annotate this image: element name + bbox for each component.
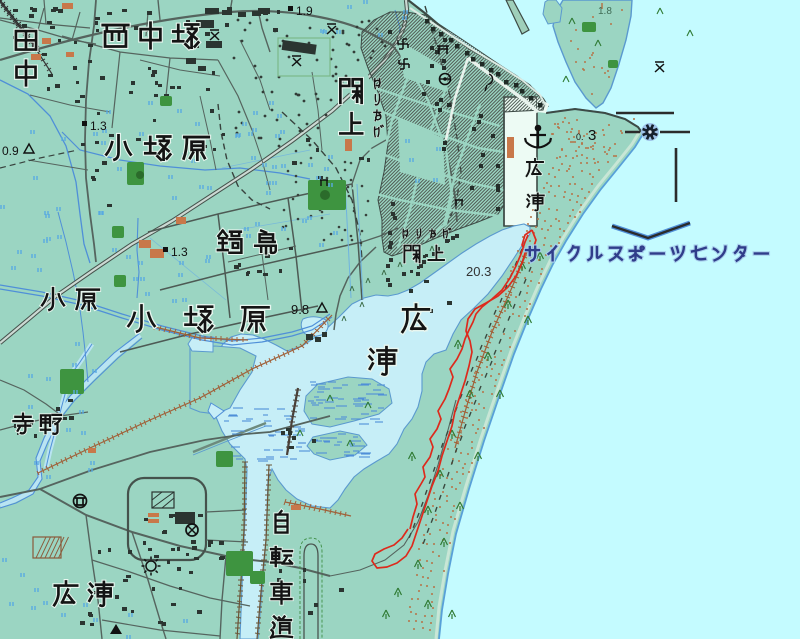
svg-text:0.: 0.: [576, 132, 584, 142]
svg-text:1.3: 1.3: [171, 245, 188, 259]
svg-text:20.3: 20.3: [466, 264, 491, 279]
svg-text:9.8: 9.8: [291, 302, 309, 317]
svg-text:1.3: 1.3: [90, 119, 107, 133]
svg-text:1.8: 1.8: [598, 6, 612, 17]
svg-text:0.9: 0.9: [2, 144, 19, 158]
svg-text:3: 3: [588, 127, 596, 144]
svg-text:1.9: 1.9: [296, 4, 313, 18]
